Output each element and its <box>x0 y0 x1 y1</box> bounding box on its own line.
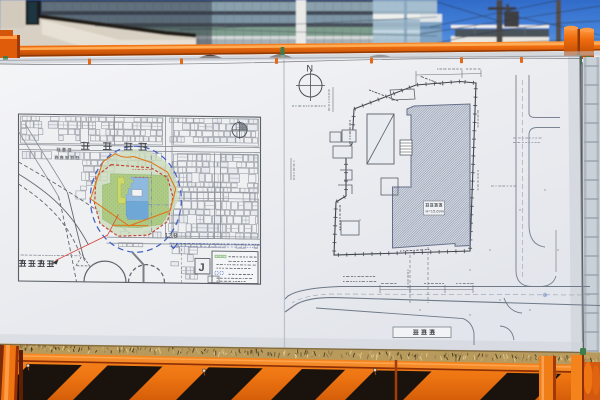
svg-text:N: N <box>307 64 314 74</box>
svg-text:J: J <box>199 262 205 274</box>
svg-text:H=15.69m: H=15.69m <box>426 209 445 214</box>
svg-text:12.8: 12.8 <box>164 232 177 239</box>
